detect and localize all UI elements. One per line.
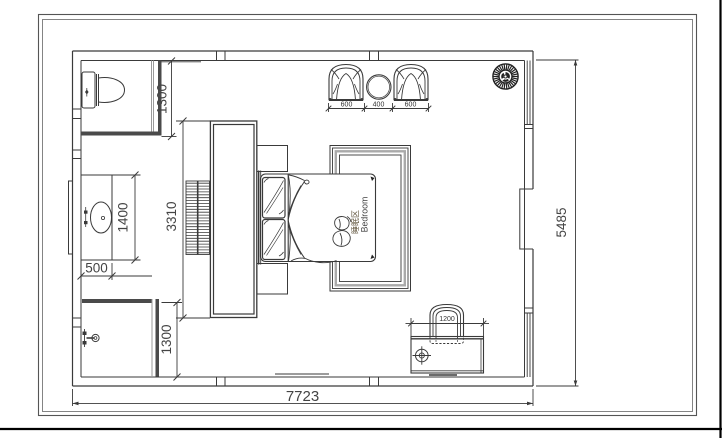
svg-text:睡眠区: 睡眠区 bbox=[351, 210, 360, 234]
svg-text:1300: 1300 bbox=[159, 324, 174, 354]
svg-text:600: 600 bbox=[341, 102, 353, 109]
svg-text:Bedroom: Bedroom bbox=[360, 197, 370, 233]
svg-text:500: 500 bbox=[85, 261, 108, 276]
svg-text:5485: 5485 bbox=[554, 207, 569, 237]
svg-text:600: 600 bbox=[405, 102, 417, 109]
svg-text:1300: 1300 bbox=[155, 84, 170, 114]
svg-text:7723: 7723 bbox=[286, 388, 319, 405]
svg-text:3310: 3310 bbox=[164, 201, 179, 231]
svg-text:1200: 1200 bbox=[439, 316, 455, 323]
svg-text:1400: 1400 bbox=[116, 202, 131, 232]
svg-text:400: 400 bbox=[373, 102, 385, 109]
